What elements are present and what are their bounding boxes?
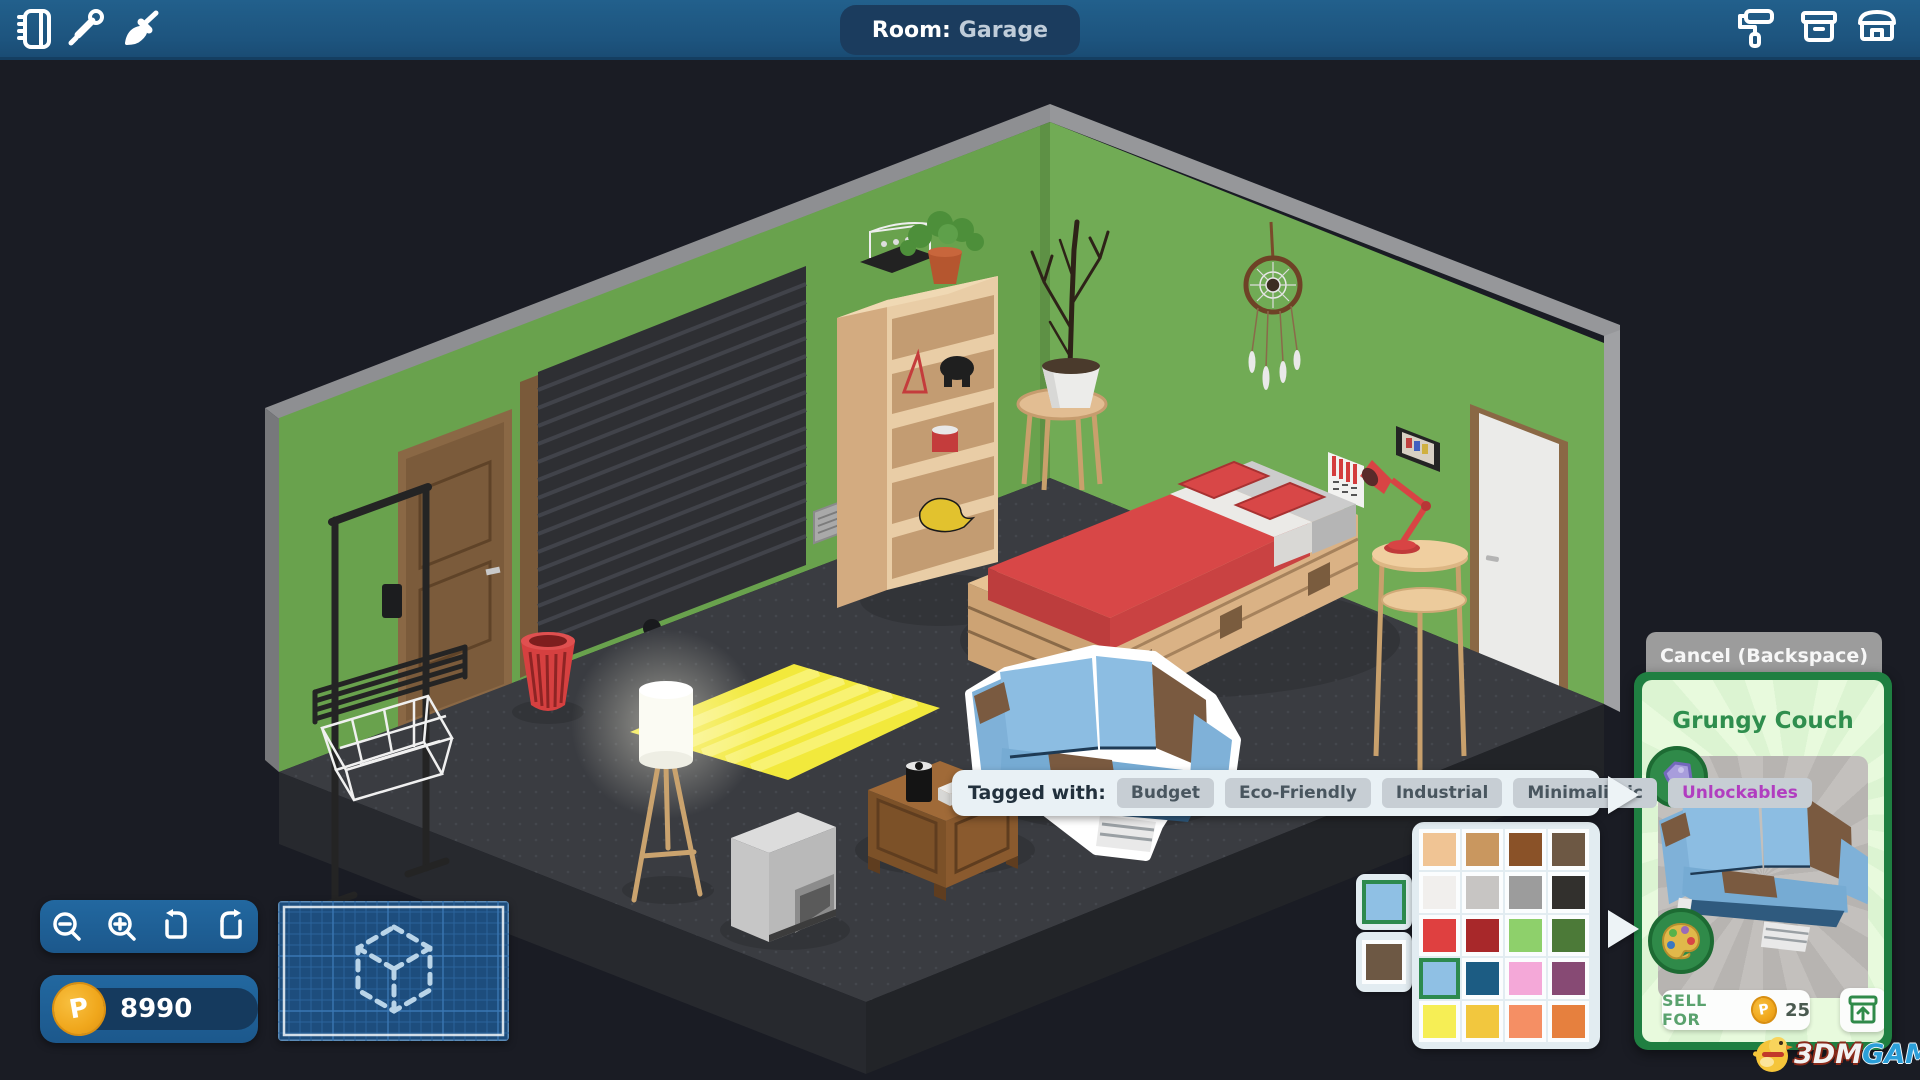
palette-swatch-14[interactable]: [1505, 958, 1546, 999]
item-panel: Grungy Couch: [1634, 672, 1892, 1050]
tag-tooltip-label: Tagged with:: [968, 782, 1106, 804]
journal-icon[interactable]: [12, 6, 58, 52]
current-color-slot-2[interactable]: [1356, 932, 1412, 992]
wooden-door[interactable]: [398, 409, 512, 733]
tag-list: BudgetEco-FriendlyIndustrialMinimalistic…: [1117, 778, 1812, 808]
palette-swatch-12[interactable]: [1419, 958, 1460, 999]
sell-button[interactable]: SELL FOR P 25: [1662, 990, 1810, 1030]
zoom-out-icon[interactable]: [47, 907, 87, 947]
palette-swatch-5[interactable]: [1462, 872, 1503, 913]
currency-coin-icon: P: [48, 978, 111, 1041]
light-switch[interactable]: [382, 584, 402, 618]
room-label: Room:: [872, 18, 951, 43]
palette-swatch-16[interactable]: [1419, 1001, 1460, 1042]
currency-panel: P 8990: [40, 975, 258, 1043]
palette-swatch-10[interactable]: [1505, 915, 1546, 956]
palette-swatch-0[interactable]: [1419, 829, 1460, 870]
coin-icon: P: [1749, 994, 1779, 1026]
currency-value: 8990: [120, 994, 192, 1024]
watermark-3dm: 3DM: [1794, 1039, 1862, 1070]
sell-label: SELL FOR: [1662, 991, 1743, 1029]
sell-price: 25: [1785, 1000, 1810, 1021]
cancel-label: Cancel (Backspace): [1660, 645, 1868, 667]
current-color-1[interactable]: [1362, 880, 1406, 924]
room-title-pill: Room: Garage: [840, 5, 1080, 55]
watermark-chick-icon: [1752, 1032, 1794, 1076]
palette-swatch-8[interactable]: [1419, 915, 1460, 956]
current-color-2[interactable]: [1362, 940, 1406, 984]
palette-swatch-11[interactable]: [1548, 915, 1589, 956]
room-name: Garage: [959, 18, 1048, 43]
tag-industrial[interactable]: Industrial: [1382, 778, 1502, 808]
stash-button[interactable]: [1840, 988, 1884, 1032]
tag-eco-friendly[interactable]: Eco-Friendly: [1225, 778, 1371, 808]
item-name: Grungy Couch: [1642, 708, 1884, 734]
palette-swatch-7[interactable]: [1548, 872, 1589, 913]
game-window: Room: Garage Tagged wi: [0, 0, 1920, 1080]
palette-icon: [1661, 921, 1701, 961]
tag-tooltip: Tagged with: BudgetEco-FriendlyIndustria…: [952, 770, 1600, 816]
tag-unlockables[interactable]: Unlockables: [1668, 778, 1812, 808]
current-color-slot-1[interactable]: [1356, 874, 1412, 930]
shop-icon[interactable]: [1854, 6, 1900, 52]
paint-roller-icon[interactable]: [1735, 6, 1781, 52]
palette-swatch-19[interactable]: [1548, 1001, 1589, 1042]
palette-arrow: [1608, 910, 1639, 948]
paintbrush-icon[interactable]: [118, 6, 164, 52]
currency-display: P 8990: [60, 988, 258, 1030]
palette-swatch-9[interactable]: [1462, 915, 1503, 956]
palette-badge[interactable]: [1648, 908, 1714, 974]
watermark-game: GAME: [1862, 1039, 1920, 1070]
rotate-right-icon[interactable]: [211, 907, 251, 947]
view-controls: [40, 900, 258, 953]
palette-swatch-15[interactable]: [1548, 958, 1589, 999]
palette-swatch-6[interactable]: [1505, 872, 1546, 913]
minimap[interactable]: [278, 901, 509, 1041]
palette-swatch-17[interactable]: [1462, 1001, 1503, 1042]
palette-swatch-13[interactable]: [1462, 958, 1503, 999]
rotate-left-icon[interactable]: [156, 907, 196, 947]
top-bar: Room: Garage: [0, 0, 1920, 60]
zoom-in-icon[interactable]: [102, 907, 142, 947]
speaker[interactable]: [906, 762, 932, 803]
watermark: 3DM GAME: [1752, 1032, 1920, 1076]
palette-swatch-2[interactable]: [1505, 829, 1546, 870]
stash-box-icon: [1847, 994, 1879, 1026]
eyedropper-icon[interactable]: [64, 6, 110, 52]
color-palette: [1412, 822, 1600, 1049]
palette-swatch-1[interactable]: [1462, 829, 1503, 870]
tag-budget[interactable]: Budget: [1117, 778, 1214, 808]
tooltip-arrow: [1608, 776, 1639, 814]
palette-swatch-3[interactable]: [1548, 829, 1589, 870]
palette-swatch-18[interactable]: [1505, 1001, 1546, 1042]
storage-box-icon[interactable]: [1796, 6, 1842, 52]
palette-swatch-4[interactable]: [1419, 872, 1460, 913]
item-panel-inner: Grungy Couch: [1642, 680, 1884, 1042]
